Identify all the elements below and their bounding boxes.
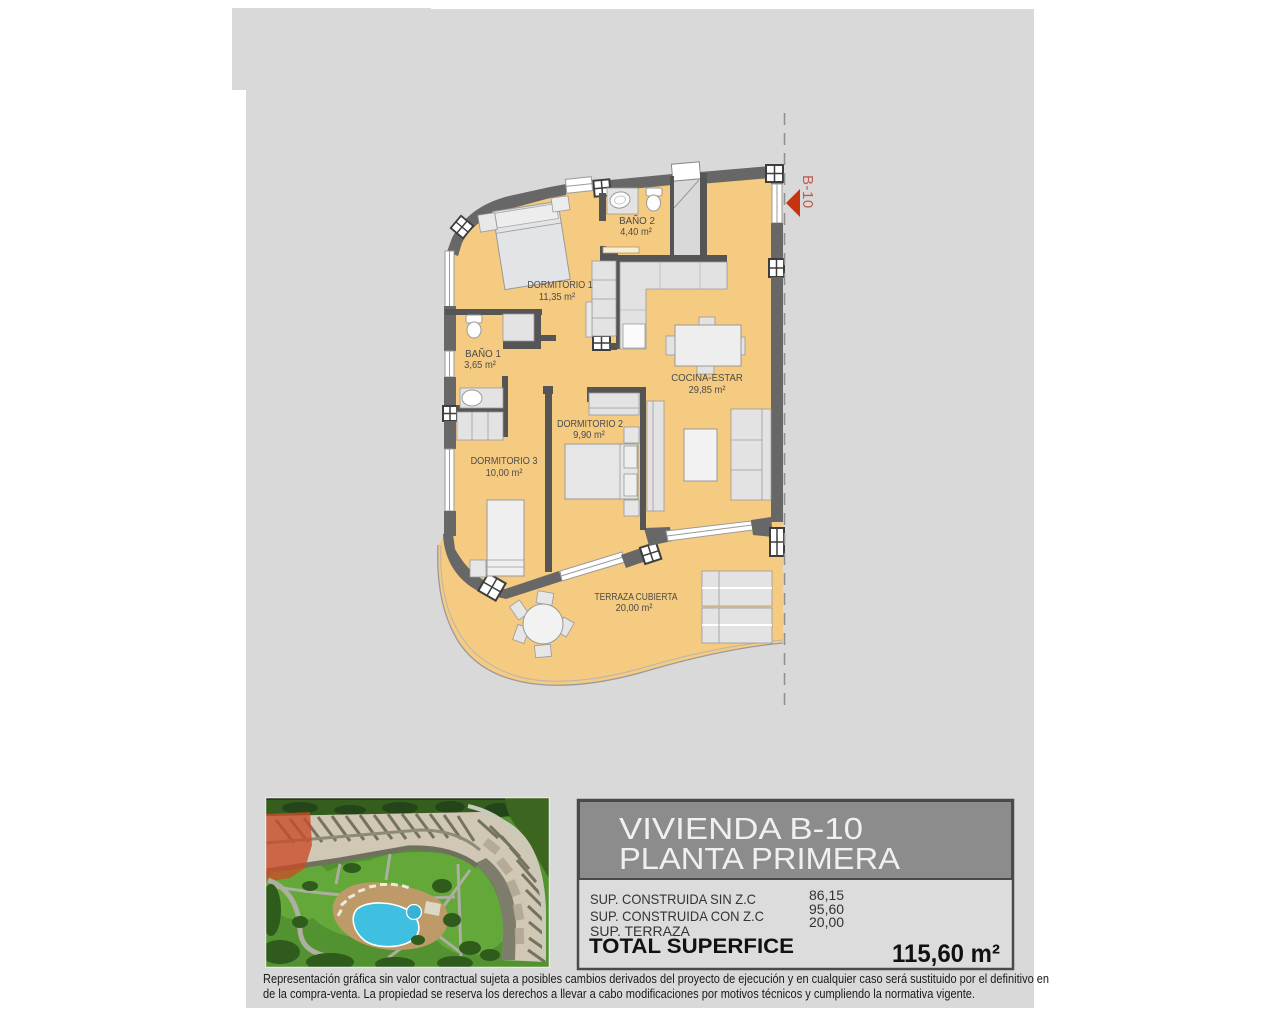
- svg-text:SUP. CONSTRUIDA CON Z.C: SUP. CONSTRUIDA CON Z.C: [590, 908, 764, 924]
- svg-text:Representación gráfica sin val: Representación gráfica sin valor contrac…: [263, 971, 1049, 986]
- svg-text:DORMITORIO 1: DORMITORIO 1: [527, 279, 592, 291]
- svg-text:DORMITORIO 2: DORMITORIO 2: [557, 418, 623, 430]
- svg-text:BAÑO 1: BAÑO 1: [465, 347, 501, 360]
- svg-text:SUP. CONSTRUIDA SIN Z.C: SUP. CONSTRUIDA SIN Z.C: [590, 891, 756, 907]
- svg-text:115,60 m²: 115,60 m²: [892, 940, 1000, 968]
- svg-text:DORMITORIO 3: DORMITORIO 3: [471, 456, 538, 468]
- svg-text:B-10: B-10: [799, 175, 816, 209]
- svg-text:29,85 m²: 29,85 m²: [689, 385, 727, 397]
- svg-text:9,90 m²: 9,90 m²: [573, 430, 605, 442]
- svg-text:TERRAZA CUBIERTA: TERRAZA CUBIERTA: [595, 591, 679, 603]
- svg-text:20,00 m²: 20,00 m²: [616, 603, 654, 615]
- svg-text:de la compra-venta. La propied: de la compra-venta. La propiedad se rese…: [263, 986, 975, 1001]
- svg-text:10,00 m²: 10,00 m²: [486, 468, 524, 480]
- svg-text:20,00: 20,00: [809, 914, 844, 930]
- svg-text:COCINA-ESTAR: COCINA-ESTAR: [671, 373, 743, 384]
- svg-text:4,40 m²: 4,40 m²: [620, 227, 652, 239]
- svg-text:TOTAL SUPERFICE: TOTAL SUPERFICE: [589, 935, 794, 958]
- svg-text:11,35 m²: 11,35 m²: [539, 292, 576, 304]
- svg-text:3,65 m²: 3,65 m²: [464, 360, 496, 372]
- svg-text:PLANTA PRIMERA: PLANTA PRIMERA: [619, 841, 900, 876]
- svg-text:BAÑO 2: BAÑO 2: [619, 214, 655, 227]
